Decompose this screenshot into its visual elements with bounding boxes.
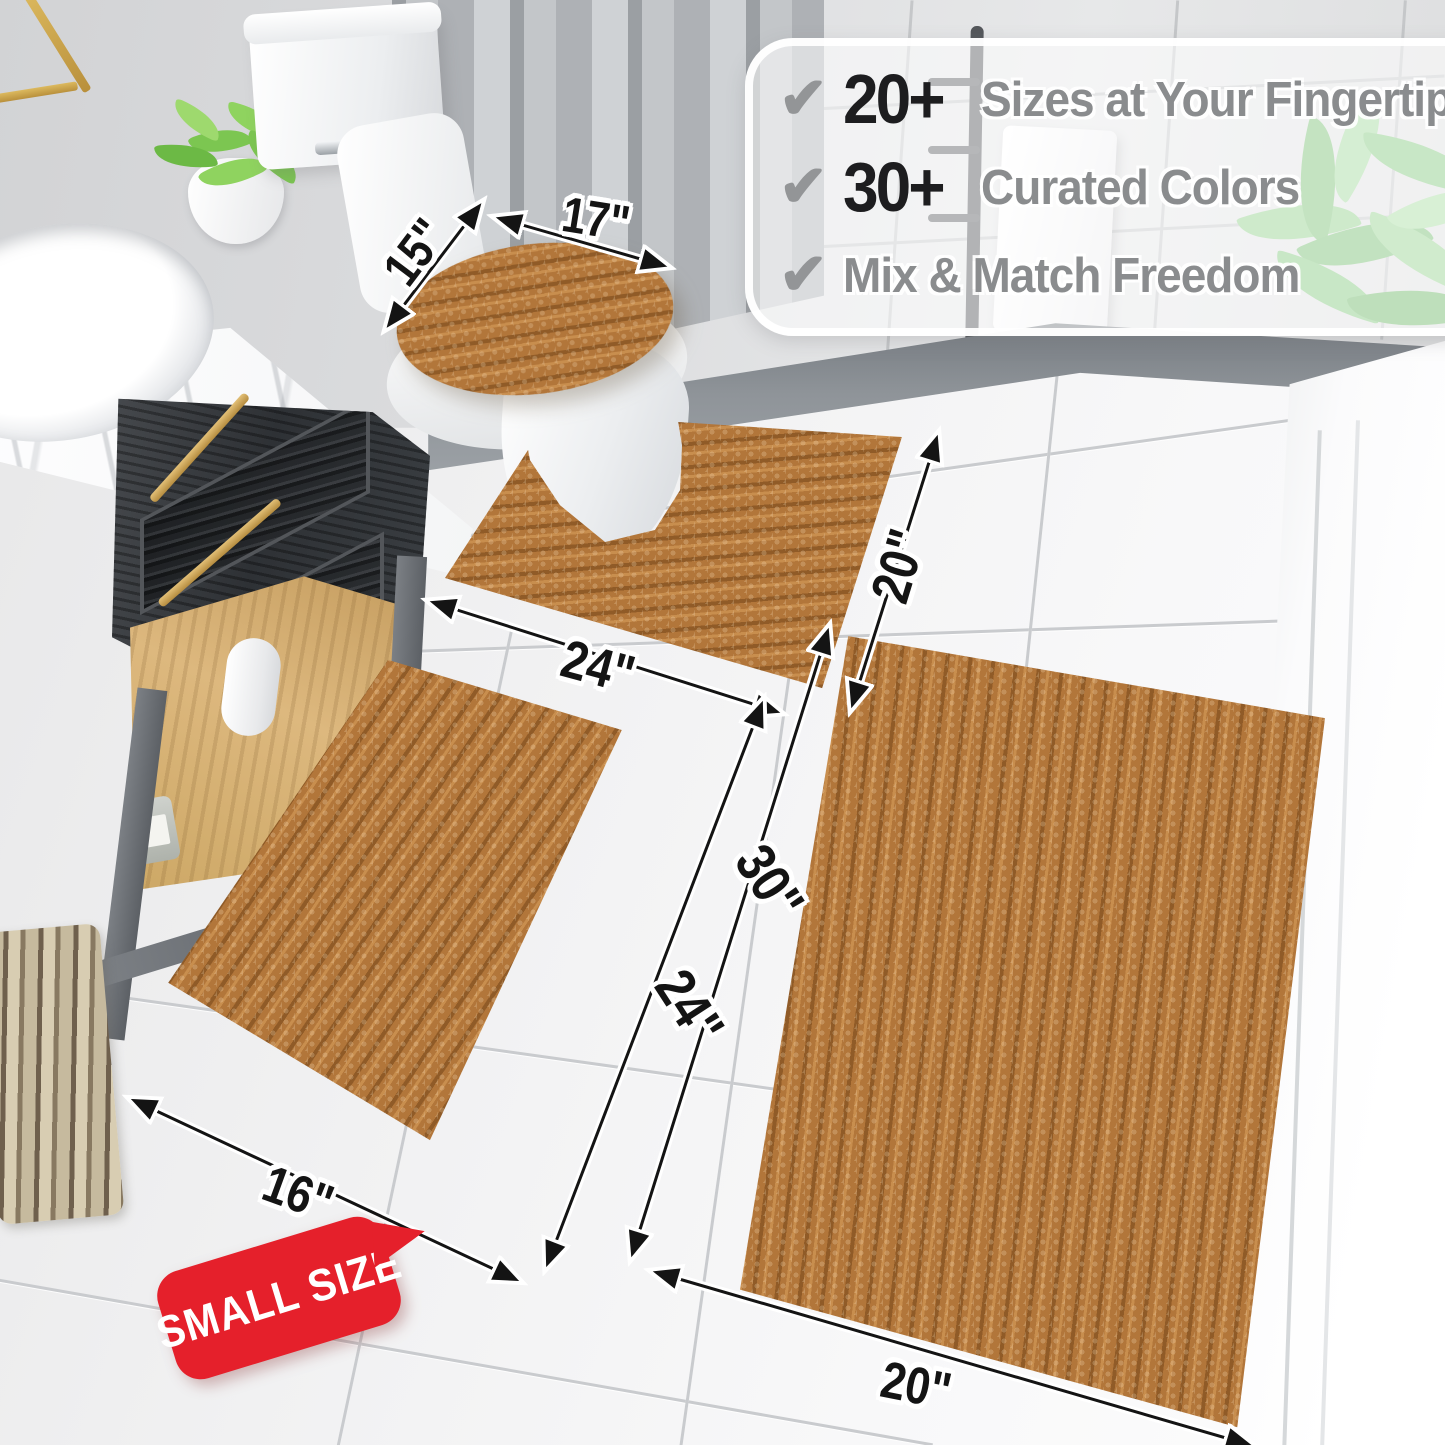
feature-label: Curated Colors — [981, 163, 1299, 212]
check-icon: ✔ — [779, 246, 843, 304]
feature-value: 30+ — [843, 152, 981, 221]
feature-row: ✔ Mix & Match Freedom — [779, 236, 1445, 314]
product-photo-bathroom-rug-set: 15" 17" 20" 24" 30" 24" 16" 20" ✔ 20+ Si… — [0, 0, 1445, 1445]
dim-label-lid-width: 17" — [558, 185, 634, 253]
feature-row: ✔ 30+ Curated Colors — [779, 148, 1445, 226]
feature-row: ✔ 20+ Sizes at Your Fingertips — [779, 60, 1445, 138]
check-icon: ✔ — [779, 158, 843, 216]
feature-callout-panel: ✔ 20+ Sizes at Your Fingertips ✔ 30+ Cur… — [745, 38, 1445, 336]
check-icon: ✔ — [779, 70, 843, 128]
feature-label: Sizes at Your Fingertips — [981, 75, 1445, 124]
feature-label: Mix & Match Freedom — [843, 251, 1299, 300]
feature-value: 20+ — [843, 64, 981, 133]
